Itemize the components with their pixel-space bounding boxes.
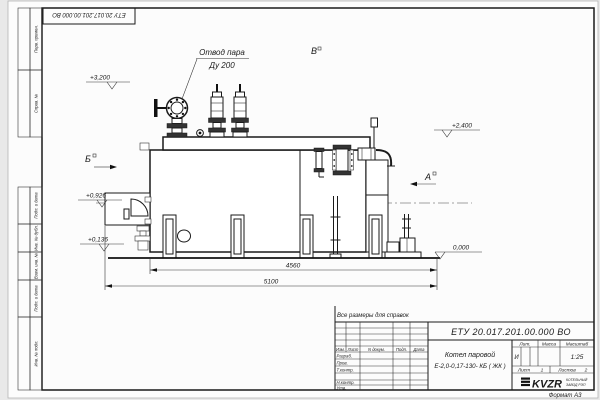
row-prov: Пров.: [337, 361, 348, 366]
margin-label: Взам. инв. №: [34, 253, 39, 279]
callout-line1: Отвод пара: [199, 48, 245, 57]
callout-line2: Ду 200: [208, 61, 235, 70]
lit-header: Лит.: [518, 342, 530, 348]
sheets-value: 2: [584, 367, 588, 373]
row-nkontr: Н.контр.: [337, 380, 355, 385]
lit-value: И: [514, 355, 519, 361]
margin-label: Инв. № дубл.: [34, 225, 39, 251]
logo-caption1: КОТЕЛЬНЫЙ: [566, 378, 588, 382]
top-stamp-doc-number: ЕТУ 20.017.201.00.000 ВО: [52, 11, 126, 17]
col-izm: Изм.: [336, 347, 345, 352]
margin-label: Подп. и дата: [34, 285, 39, 312]
sheet-label: Лист: [517, 367, 530, 373]
svg-text:Б: Б: [85, 154, 91, 164]
svg-text:А: А: [424, 172, 431, 182]
svg-text:+2,400: +2,400: [452, 123, 472, 130]
reference-note: Все размеры для справок: [337, 313, 410, 319]
svg-text:+3,200: +3,200: [90, 75, 110, 82]
logo-bars-icon: [521, 378, 530, 380]
col-podp: Подп.: [396, 347, 407, 352]
row-razrab: Разраб.: [337, 354, 353, 359]
format-note: Формат А3: [549, 393, 582, 399]
margin-label: Подп. и дата: [34, 192, 39, 219]
product-name-line2: Е-2,0-0,17-130- КБ ( ЖК ): [434, 363, 505, 370]
mass-header: Масса: [542, 342, 557, 348]
col-data: Дата: [412, 347, 425, 352]
logo-caption2: ЗАВОД РЭП: [566, 383, 586, 387]
col-list: Лист: [347, 347, 359, 352]
sheet-value: 1: [541, 367, 544, 373]
dim-value-outer: 5100: [264, 279, 279, 286]
handwheel: [154, 99, 158, 117]
row-tkontr: Т.контр.: [337, 368, 354, 373]
svg-text:0,000: 0,000: [453, 245, 470, 252]
scale-value: 1:25: [571, 354, 584, 361]
dim-value-inner: 4560: [286, 263, 301, 270]
logo-text: KVZR: [532, 379, 562, 391]
sheets-label: Листов: [557, 367, 576, 373]
svg-text:+0,136: +0,136: [88, 237, 108, 244]
margin-label: Перв. примен.: [34, 25, 39, 53]
burner-box: [105, 193, 151, 225]
svg-text:В: В: [311, 46, 317, 56]
col-dokum: N докум.: [368, 347, 385, 352]
engineering-drawing-sheet: Перв. примен. Справ. № Подп. и дата Инв.…: [0, 0, 600, 400]
row-utv: Утв.: [337, 385, 347, 390]
scale-header: Масштаб: [566, 342, 589, 348]
margin-label: Справ. №: [34, 94, 39, 113]
svg-text:+0,926: +0,926: [86, 193, 106, 200]
title-doc-number: ЕТУ 20.017.201.00.000 ВО: [451, 327, 571, 337]
product-name-line1: Котел паровой: [445, 351, 495, 359]
margin-label: Инв. № подл.: [34, 341, 39, 367]
